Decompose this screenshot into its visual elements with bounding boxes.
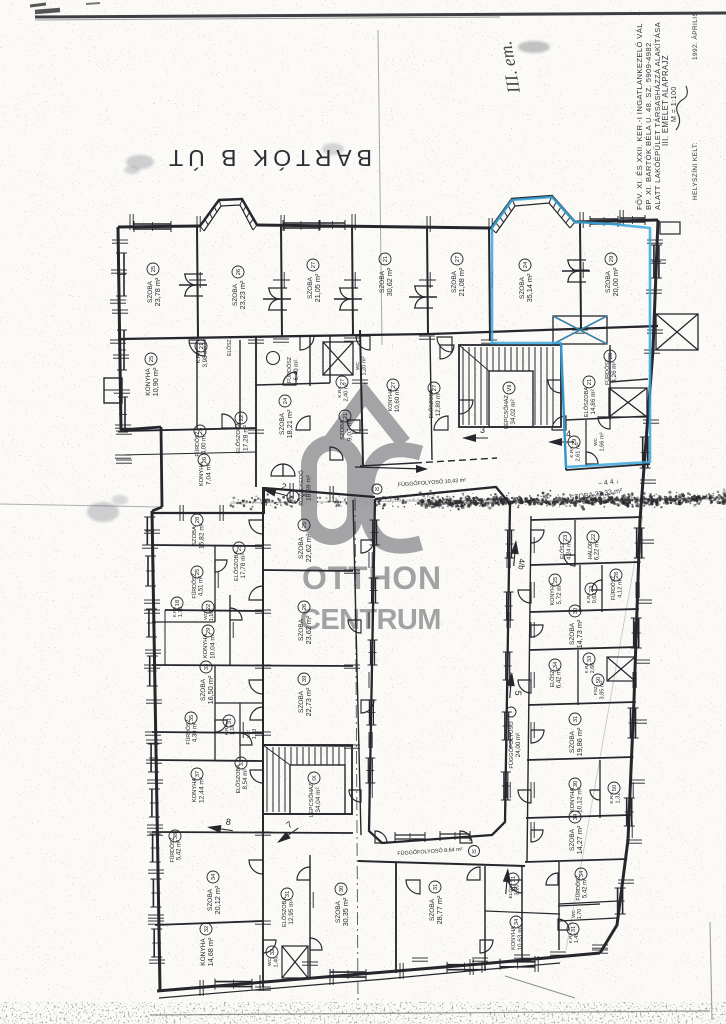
svg-text:14,86 m²: 14,86 m² xyxy=(590,389,597,414)
svg-text:SZOBA: SZOBA xyxy=(192,526,198,546)
svg-text:1,10: 1,10 xyxy=(252,729,258,740)
svg-text:1,70: 1,70 xyxy=(577,909,583,920)
svg-text:22: 22 xyxy=(591,534,597,540)
svg-text:WC: WC xyxy=(267,957,273,966)
svg-text:SZOBA: SZOBA xyxy=(340,420,346,440)
svg-text:27: 27 xyxy=(391,382,397,388)
svg-text:22: 22 xyxy=(239,415,245,421)
svg-text:34: 34 xyxy=(211,873,217,880)
svg-text:3: 3 xyxy=(480,425,485,435)
svg-text:LÉPCSŐHÁZ: LÉPCSŐHÁZ xyxy=(503,394,510,428)
svg-text:1992. ÁPRILIS: 1992. ÁPRILIS xyxy=(690,12,699,60)
svg-text:35: 35 xyxy=(189,715,195,721)
svg-text:21,05 m²: 21,05 m² xyxy=(313,273,322,302)
svg-text:29: 29 xyxy=(206,628,212,634)
svg-text:24: 24 xyxy=(283,397,289,404)
svg-text:34,02 m²: 34,02 m² xyxy=(510,399,517,424)
svg-text:KONYHA: KONYHA xyxy=(192,778,198,803)
svg-text:26: 26 xyxy=(302,604,308,610)
svg-text:10,90 m²: 10,90 m² xyxy=(151,367,160,396)
svg-text:12,95 m²: 12,95 m² xyxy=(288,899,295,924)
svg-text:31: 31 xyxy=(511,876,517,882)
svg-text:1,40: 1,40 xyxy=(273,957,279,968)
svg-text:ELŐSZOBA: ELŐSZOBA xyxy=(281,897,288,927)
svg-text:12,44 m²: 12,44 m² xyxy=(198,776,205,803)
svg-text:4/b: 4/b xyxy=(516,558,526,570)
svg-text:FÜRDŐSZ: FÜRDŐSZ xyxy=(610,576,617,600)
svg-text:KONYHA: KONYHA xyxy=(511,926,517,950)
svg-text:15,82 m²: 15,82 m² xyxy=(198,522,205,549)
svg-text:BARTÓK B ÚT: BARTÓK B ÚT xyxy=(164,145,372,171)
svg-text:5,42 m²: 5,42 m² xyxy=(177,840,183,860)
svg-text:24,00 m²: 24,00 m² xyxy=(515,733,522,757)
svg-text:26: 26 xyxy=(202,457,208,463)
svg-text:FŐV. XI. ÉS XXII. KER.-I INGAT: FŐV. XI. ÉS XXII. KER.-I INGATLANKEZELŐ … xyxy=(635,23,644,210)
svg-text:ELŐSZ.: ELŐSZ. xyxy=(226,338,233,356)
svg-text:X: X xyxy=(303,493,309,497)
svg-text:22,73 m²: 22,73 m² xyxy=(304,687,313,716)
svg-text:30: 30 xyxy=(573,608,579,614)
svg-text:26: 26 xyxy=(236,269,242,275)
svg-text:28: 28 xyxy=(195,517,201,523)
svg-text:20,00 m²: 20,00 m² xyxy=(611,267,620,296)
svg-text:35,14 m²: 35,14 m² xyxy=(525,273,534,302)
svg-text:28: 28 xyxy=(614,572,620,578)
svg-text:4: 4 xyxy=(566,429,571,439)
svg-text:27: 27 xyxy=(340,379,346,385)
svg-text:28,77 m²: 28,77 m² xyxy=(435,895,444,924)
svg-text:FÜRDŐSZ: FÜRDŐSZ xyxy=(194,431,201,456)
svg-text:31: 31 xyxy=(227,718,233,724)
svg-text:16,50 m²: 16,50 m² xyxy=(206,675,215,704)
svg-text:18,21 m²: 18,21 m² xyxy=(285,409,294,438)
svg-text:39: 39 xyxy=(302,676,308,682)
svg-text:34: 34 xyxy=(573,813,579,820)
svg-text:ELŐSZ.: ELŐSZ. xyxy=(549,669,556,687)
svg-text:25: 25 xyxy=(553,577,559,583)
svg-text:VII: VII xyxy=(507,384,513,391)
svg-text:LÉPCSŐHÁZ: LÉPCSŐHÁZ xyxy=(308,782,315,816)
svg-text:30,62 m²: 30,62 m² xyxy=(385,267,394,296)
svg-text:21: 21 xyxy=(343,413,349,419)
svg-text:XI: XI xyxy=(472,850,477,856)
svg-text:5,42 m²: 5,42 m² xyxy=(583,878,589,898)
svg-text:24: 24 xyxy=(523,261,529,268)
svg-text:23: 23 xyxy=(563,535,569,541)
svg-text:18: 18 xyxy=(175,600,181,606)
svg-text:21,08 m²: 21,08 m² xyxy=(457,267,466,296)
svg-text:30: 30 xyxy=(573,781,579,787)
svg-text:14,73 m²: 14,73 m² xyxy=(575,619,584,648)
svg-text:27: 27 xyxy=(455,256,461,262)
svg-text:HELYSZÍNI KELT:: HELYSZÍNI KELT: xyxy=(690,142,699,200)
svg-text:27: 27 xyxy=(311,262,317,268)
svg-text:ELŐSZOBA: ELŐSZOBA xyxy=(233,551,240,581)
svg-text:19,86 m²: 19,86 m² xyxy=(575,727,584,756)
svg-text:1,20 m²: 1,20 m² xyxy=(361,356,367,375)
svg-text:31: 31 xyxy=(285,891,291,897)
svg-text:10,63 m²: 10,63 m² xyxy=(517,925,524,950)
svg-text:5: 5 xyxy=(513,690,523,696)
svg-text:31: 31 xyxy=(433,884,439,890)
svg-text:8,54 m²: 8,54 m² xyxy=(242,769,249,790)
svg-text:50: 50 xyxy=(612,785,618,791)
svg-text:23,78 m²: 23,78 m² xyxy=(153,277,162,306)
svg-text:34: 34 xyxy=(514,918,520,925)
svg-text:27: 27 xyxy=(432,385,438,391)
svg-text:XI: XI xyxy=(375,487,380,493)
svg-text:20,12 m²: 20,12 m² xyxy=(213,885,222,914)
svg-text:1,32: 1,32 xyxy=(615,793,621,804)
svg-text:33: 33 xyxy=(587,656,593,662)
svg-text:17,28 m²: 17,28 m² xyxy=(242,424,249,451)
svg-text:37: 37 xyxy=(195,771,201,777)
svg-text:25: 25 xyxy=(149,356,155,362)
svg-text:10,60 m²: 10,60 m² xyxy=(394,388,401,412)
svg-text:4,51 m²: 4,51 m² xyxy=(199,576,205,596)
svg-text:5,72 m²: 5,72 m² xyxy=(556,584,563,605)
svg-text:ELŐSZOBA: ELŐSZOBA xyxy=(583,387,590,417)
svg-text:32: 32 xyxy=(204,926,210,932)
svg-text:4,30 m²: 4,30 m² xyxy=(193,722,199,742)
svg-text:1,66 m²: 1,66 m² xyxy=(599,432,605,451)
svg-text:34: 34 xyxy=(579,870,585,877)
svg-text:38: 38 xyxy=(173,833,179,839)
svg-text:IX: IX xyxy=(312,775,318,781)
svg-text:25: 25 xyxy=(195,569,201,575)
svg-text:25: 25 xyxy=(198,428,204,434)
svg-text:23,23 m²: 23,23 m² xyxy=(238,280,247,309)
svg-text:28: 28 xyxy=(608,353,614,359)
svg-text:4,26 m²: 4,26 m² xyxy=(611,362,618,383)
svg-text:22: 22 xyxy=(206,604,212,610)
svg-text:WC: WC xyxy=(355,361,361,370)
svg-text:33: 33 xyxy=(204,664,210,670)
svg-text:BP. XI. BARTÓK BÉLA U. 48. SZ.: BP. XI. BARTÓK BÉLA U. 48. SZ. 5909-4982 xyxy=(644,42,653,210)
svg-text:50: 50 xyxy=(596,677,602,683)
svg-text:21: 21 xyxy=(383,256,389,262)
svg-text:WC: WC xyxy=(571,909,576,917)
svg-text:25: 25 xyxy=(151,266,157,272)
svg-text:KÖZLEKEDŐ: KÖZLEKEDŐ xyxy=(298,470,305,506)
svg-text:21: 21 xyxy=(587,379,593,385)
svg-text:34,04 m²: 34,04 m² xyxy=(315,787,322,812)
svg-text:33: 33 xyxy=(239,760,245,766)
svg-text:14,27 m²: 14,27 m² xyxy=(575,825,584,854)
svg-text:21: 21 xyxy=(199,343,205,349)
svg-text:12,80 m²: 12,80 m² xyxy=(435,392,442,416)
svg-text:23,62 m²: 23,62 m² xyxy=(304,615,313,644)
svg-text:31: 31 xyxy=(571,926,577,932)
svg-text:31: 31 xyxy=(573,716,579,722)
svg-text:10,12 m²: 10,12 m² xyxy=(576,786,583,813)
svg-text:CENTRUM: CENTRUM xyxy=(300,604,441,636)
svg-text:22,62 m²: 22,62 m² xyxy=(304,533,313,562)
svg-text:29: 29 xyxy=(609,256,615,262)
svg-text:4,12 m²: 4,12 m² xyxy=(618,578,624,598)
svg-text:M = 1:100: M = 1:100 xyxy=(669,86,678,122)
svg-text:14,68 m²: 14,68 m² xyxy=(206,937,215,966)
svg-text:30: 30 xyxy=(339,886,345,892)
svg-text:KONYHA: KONYHA xyxy=(570,788,576,813)
svg-text:34: 34 xyxy=(553,661,559,668)
svg-text:30,35 m²: 30,35 m² xyxy=(341,897,350,926)
svg-text:WC: WC xyxy=(593,437,599,446)
svg-text:29: 29 xyxy=(237,545,243,551)
svg-text:17,78 m²: 17,78 m² xyxy=(240,553,247,578)
svg-text:25: 25 xyxy=(302,522,308,528)
svg-text:HÁLÓF.: HÁLÓF. xyxy=(587,541,594,559)
